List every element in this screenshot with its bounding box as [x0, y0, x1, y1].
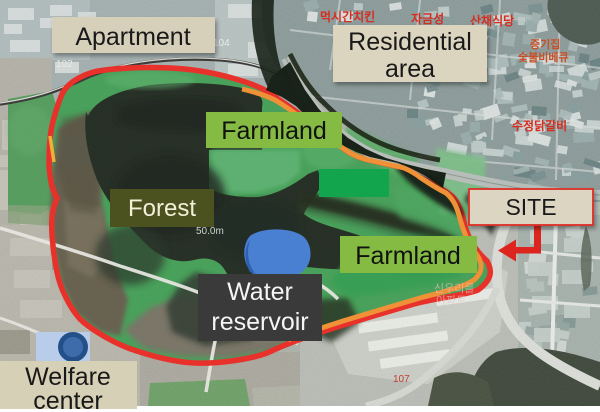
svg-text:Farmland: Farmland [221, 117, 327, 145]
svg-text:먹시간치킨: 먹시간치킨 [320, 9, 375, 24]
svg-text:신우리를: 신우리를 [434, 282, 474, 295]
svg-text:area: area [385, 55, 435, 83]
svg-text:Water: Water [227, 278, 293, 306]
svg-text:Apartment: Apartment [75, 23, 190, 51]
svg-text:107: 107 [393, 374, 410, 385]
svg-text:104: 104 [213, 38, 230, 49]
svg-text:아파트: 아파트 [436, 294, 466, 307]
svg-text:center: center [33, 387, 102, 412]
svg-text:reservoir: reservoir [211, 308, 308, 336]
svg-text:50.0m: 50.0m [196, 226, 224, 237]
svg-text:숯불비베큐: 숯불비베큐 [518, 50, 569, 64]
svg-text:증기집: 증기집 [530, 37, 560, 51]
svg-text:SITE: SITE [505, 194, 556, 220]
svg-text:Farmland: Farmland [355, 242, 461, 270]
svg-text:Forest: Forest [128, 195, 196, 222]
svg-text:자금성: 자금성 [411, 11, 444, 26]
svg-text:102: 102 [56, 59, 73, 70]
svg-text:Residential: Residential [348, 28, 472, 56]
svg-text:수정닭갈비: 수정닭갈비 [512, 118, 567, 133]
